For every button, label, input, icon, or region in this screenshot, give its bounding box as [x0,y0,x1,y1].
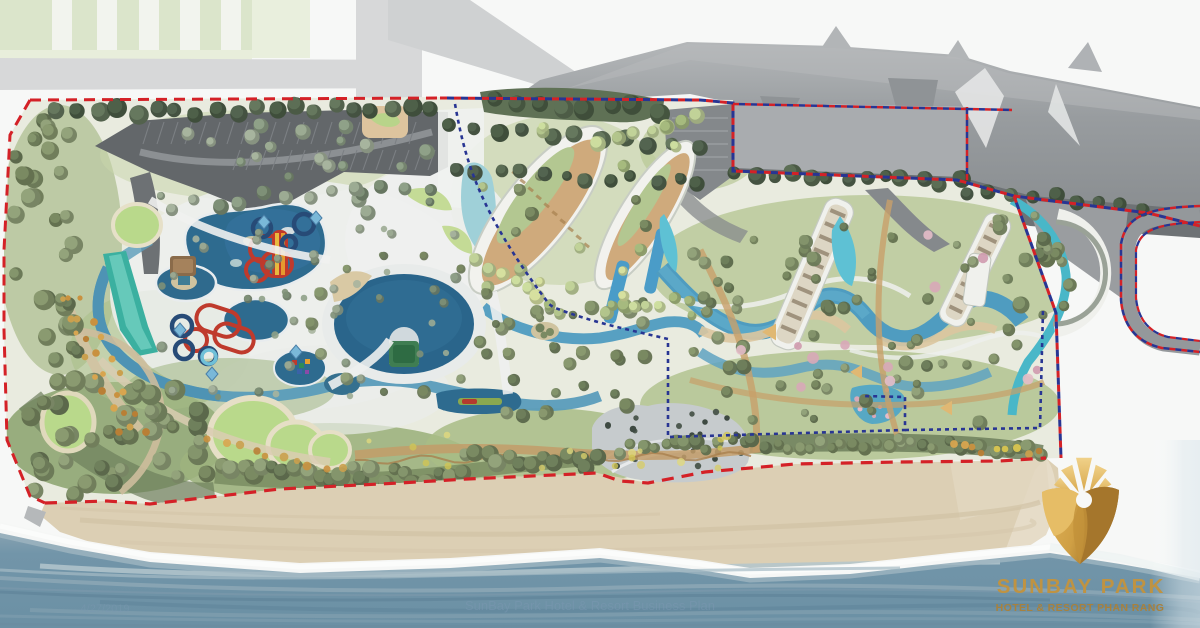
svg-text:4/27/2019: 4/27/2019 [81,603,130,615]
svg-text:HOTEL & RESORT PHAN RANG: HOTEL & RESORT PHAN RANG [996,602,1165,614]
svg-text:SUNBAY PARK: SUNBAY PARK [997,575,1166,598]
svg-text:SunBay Park Hotel & Resort Bus: SunBay Park Hotel & Resort Business Plan [465,598,715,613]
